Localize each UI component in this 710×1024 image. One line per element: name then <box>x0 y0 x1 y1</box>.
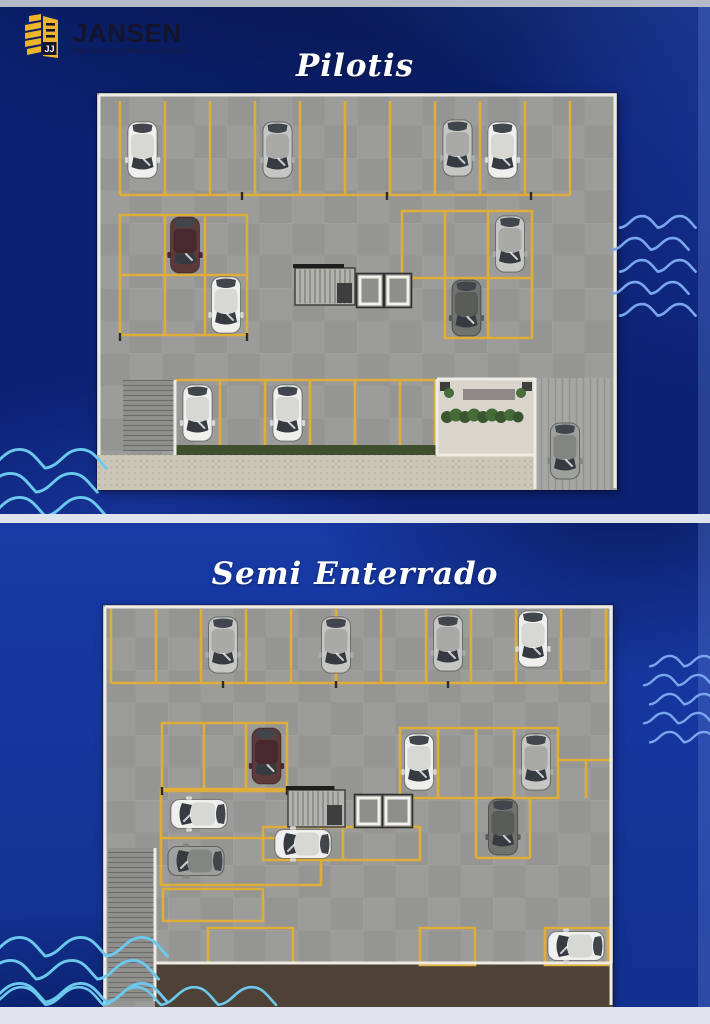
title-semi-enterrado: Semi Enterrado <box>0 556 710 592</box>
car <box>270 385 305 441</box>
right-edge-band <box>698 7 710 1007</box>
page: JJ JANSEN NEGÓCIOS IMOBILIÁRIOS Pilotis … <box>0 0 710 1024</box>
car <box>548 928 604 963</box>
car <box>492 216 527 272</box>
car <box>430 615 465 671</box>
section-divider <box>0 514 710 523</box>
car <box>518 734 553 790</box>
car <box>180 385 215 441</box>
car <box>249 728 284 784</box>
car <box>125 122 160 178</box>
floor-plan-semi-enterrado-svg <box>103 605 613 1007</box>
floor-plan-semi-enterrado <box>103 605 613 1007</box>
car <box>547 423 582 479</box>
car <box>260 122 295 178</box>
car <box>167 217 202 273</box>
car <box>401 734 436 790</box>
bottom-border-strip <box>0 1007 710 1024</box>
car <box>275 826 331 861</box>
title-pilotis: Pilotis <box>0 48 710 84</box>
car <box>168 843 224 878</box>
car <box>205 617 240 673</box>
car <box>440 120 475 176</box>
car <box>449 280 484 336</box>
car <box>485 122 520 178</box>
top-border-strip <box>0 0 710 7</box>
car <box>208 277 243 333</box>
car <box>171 796 227 831</box>
car <box>485 799 520 855</box>
car <box>515 611 550 667</box>
car <box>318 617 353 673</box>
brand-name: JANSEN <box>73 20 189 46</box>
floor-plan-pilotis-svg <box>97 93 617 490</box>
floor-plan-pilotis <box>97 93 617 490</box>
